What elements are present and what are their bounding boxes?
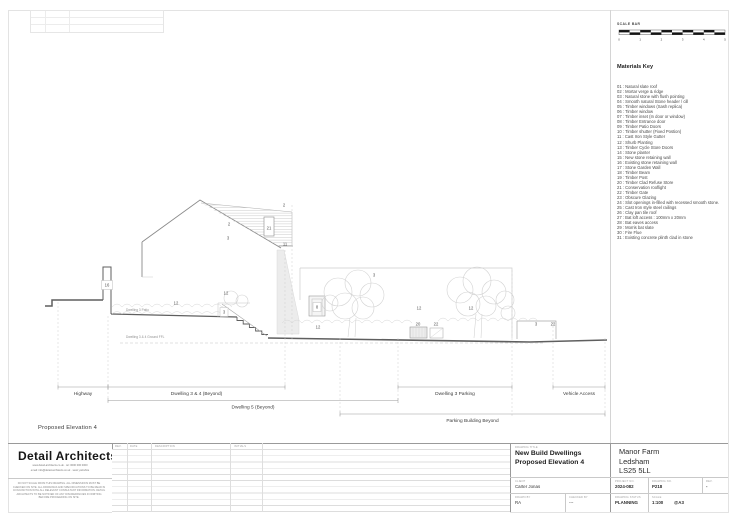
- drawing-title-line1: New Build Dwellings: [515, 450, 581, 457]
- material-callout: 3: [227, 236, 230, 241]
- drawing-view-title: Proposed Elevation 4: [38, 425, 98, 431]
- drawing-no-value: P218: [652, 484, 662, 489]
- material-callout: 22: [551, 322, 556, 327]
- revision-header-date: DATE: [130, 445, 138, 448]
- titleblock-subdivider: [565, 493, 566, 512]
- material-callout: 3: [373, 273, 376, 278]
- drawn-by-label: DRAWN BY: [515, 496, 530, 499]
- stone-wall-shaded: [277, 250, 299, 334]
- checked-by-label: CHECKED BY: [569, 496, 588, 499]
- revision-table-column-line: [230, 443, 231, 512]
- checked-by-value: ---: [569, 500, 573, 505]
- tree-sketch: [224, 267, 515, 338]
- drawing-title-line2: Proposed Elevation 4: [515, 459, 584, 466]
- scale-bar-label: SCALE BAR: [617, 22, 640, 26]
- materials-key-list: 01 : Natural slate roof02 : Mortar verge…: [617, 84, 729, 240]
- disclaimer-line: BEFORE PROCEEDING ON SITE.: [12, 496, 106, 500]
- drawing-sheet: Dwelling 3 Patio Dwelling 3 & 4 Ground F…: [0, 0, 736, 520]
- drawing-title-label: DRAWING TITLE: [515, 446, 538, 449]
- material-callout: 2: [283, 203, 286, 208]
- revision-header-rev: REV.: [115, 445, 122, 448]
- material-callout: 12: [469, 306, 474, 311]
- material-callout: 3: [535, 322, 538, 327]
- roof-hatching: [198, 203, 294, 246]
- materials-key-item: 31 : Existing concrete plinth clad in st…: [617, 235, 729, 240]
- client-value: Carter Jonas: [515, 484, 540, 489]
- scale-bar-tick: 0: [618, 38, 620, 42]
- rev-value: -: [706, 484, 707, 489]
- material-callout: 22: [434, 322, 439, 327]
- material-callout: 12: [224, 291, 229, 296]
- material-callout: 12: [316, 325, 321, 330]
- client-label: CLIENT: [515, 480, 525, 483]
- dimension-label: Parking Building Beyond: [446, 418, 499, 424]
- scale-value: 1:100: [652, 500, 663, 505]
- dimension-label: Dwelling 3 Parking: [435, 391, 475, 397]
- material-callout: 20: [416, 322, 421, 327]
- house-outline: [142, 200, 281, 277]
- material-callout: 12: [417, 306, 422, 311]
- titleblock-subdivider: [702, 477, 703, 493]
- material-callout: 11: [283, 242, 288, 247]
- material-callout: 16: [105, 283, 110, 288]
- scale-bar-tick: 2: [661, 38, 663, 42]
- revision-header-initials: INITIALS: [234, 445, 246, 448]
- material-callout: 2: [228, 222, 231, 227]
- materials-key-title: Materials Key: [617, 64, 653, 70]
- titleblock-subdivider: [510, 493, 728, 494]
- site-address-line: Ledsham: [619, 457, 649, 466]
- patio-level-label: Dwelling 3 Patio: [126, 308, 149, 312]
- rev-label: REV.: [706, 480, 713, 483]
- firm-contact-line: www.detail-architects.co.uk · tel: 0000 …: [10, 464, 110, 467]
- titleblock-subdivider: [510, 477, 728, 478]
- scale-paper: @A3: [674, 500, 684, 505]
- firm-contact-line: email: info@detail-architects.co.uk · we…: [10, 469, 110, 472]
- revision-table-column-line: [127, 443, 128, 512]
- dimension-label: Dwelling 5 (Beyond): [232, 405, 275, 411]
- project-no-label: PROJECT NO.: [615, 480, 635, 483]
- revision-table-column-line: [151, 443, 152, 512]
- drawing-no-label: DRAWING NO.: [652, 480, 672, 483]
- titleblock-subdivider: [648, 477, 649, 512]
- material-callout: 12: [174, 301, 179, 306]
- site-address-line: Manor Farm: [619, 447, 659, 456]
- door-and-stores: [309, 296, 443, 338]
- dimension-label: Highway: [74, 391, 93, 397]
- revision-header-description: DESCRIPTION: [155, 445, 175, 448]
- scale-bar: 012345: [615, 28, 733, 46]
- dimension-label: Vehicle Access: [563, 391, 596, 397]
- annotations: HighwayDwelling 3 & 4 (Beyond)Dwelling 3…: [58, 203, 605, 424]
- disclaimer-text: DO NOT SCALE FROM THIS DRAWING. ALL DIME…: [12, 482, 106, 500]
- ffl-level-label: Dwelling 3 & 4 Ground FFL: [126, 335, 165, 339]
- elevation-drawing: Dwelling 3 Patio Dwelling 3 & 4 Ground F…: [0, 0, 736, 520]
- scale-bar-tick: 5: [724, 38, 726, 42]
- titleblock-subdivider: [8, 478, 112, 479]
- revision-table-column-line: [262, 443, 263, 512]
- status-value: PLANNING: [615, 500, 638, 505]
- firm-logo: Detail Architects: [18, 449, 117, 463]
- revision-table: [112, 449, 510, 513]
- scale-bar-tick: 1: [639, 38, 641, 42]
- scale-label: SCALE: [652, 496, 662, 499]
- project-no-value: 2024-082: [615, 484, 634, 489]
- drawn-by-value: RA: [515, 500, 521, 505]
- dimension-label: Dwelling 3 & 4 (Beyond): [171, 391, 223, 397]
- material-callout: 21: [267, 226, 272, 231]
- site-address-line: LS25 5LL: [619, 466, 651, 475]
- scale-bar-tick: 3: [682, 38, 684, 42]
- status-label: DRAWING STATUS: [615, 496, 641, 499]
- scale-bar-tick: 4: [703, 38, 705, 42]
- scale-bar-ticks: 012345: [618, 38, 726, 42]
